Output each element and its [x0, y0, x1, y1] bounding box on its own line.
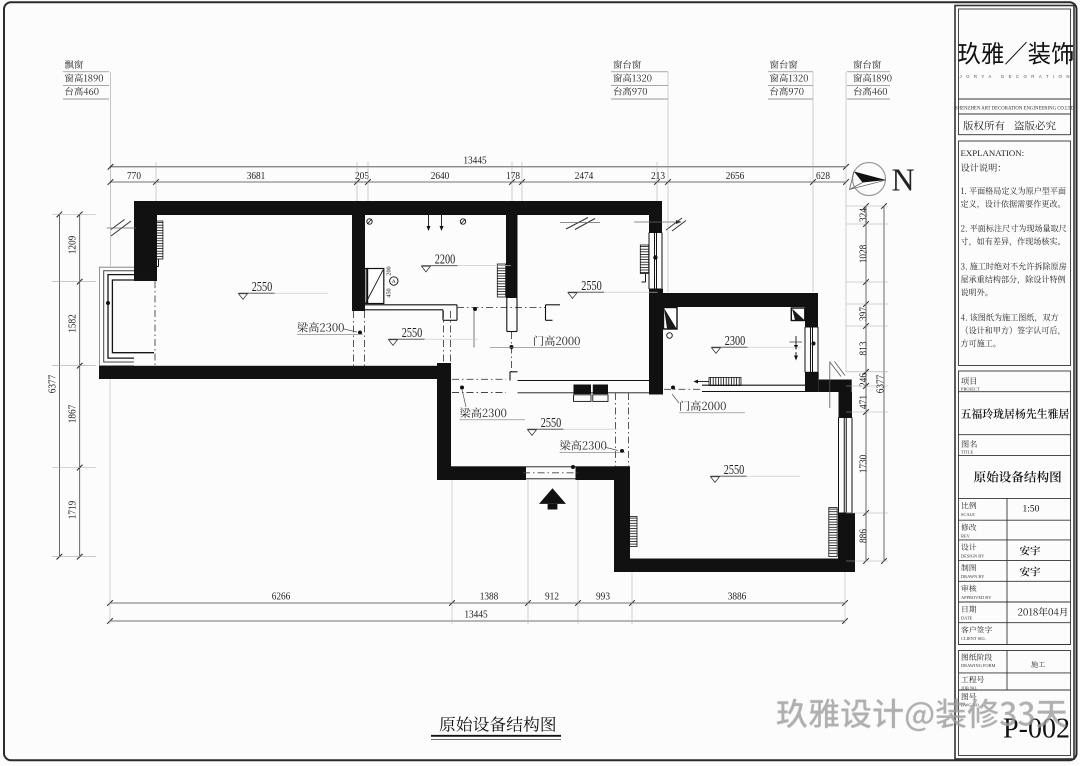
svg-text:DRAWN BY: DRAWN BY — [961, 574, 985, 579]
svg-text:2550: 2550 — [252, 279, 273, 294]
svg-text:1:50: 1:50 — [1023, 505, 1040, 515]
svg-text:EXPLANATION:: EXPLANATION: — [961, 148, 1025, 158]
svg-text:1719: 1719 — [67, 501, 79, 520]
svg-text:1209: 1209 — [67, 236, 79, 255]
svg-text:1867: 1867 — [67, 404, 79, 423]
svg-text:13445: 13445 — [464, 608, 487, 620]
svg-text:6266: 6266 — [272, 590, 291, 602]
svg-text:A: A — [392, 279, 396, 285]
svg-text:TITLE: TITLE — [961, 450, 974, 455]
svg-text:2640: 2640 — [431, 170, 450, 182]
svg-text:APPROVED BY: APPROVED BY — [961, 595, 992, 600]
svg-text:246: 246 — [858, 372, 870, 387]
svg-text:2474: 2474 — [575, 170, 594, 182]
svg-text:2300: 2300 — [725, 333, 746, 348]
svg-text:13445: 13445 — [463, 154, 486, 166]
svg-text:1582: 1582 — [67, 314, 79, 333]
svg-text:6377: 6377 — [47, 374, 59, 393]
svg-text:993: 993 — [596, 590, 610, 602]
svg-text:886: 886 — [858, 528, 870, 543]
svg-text:770: 770 — [127, 170, 141, 182]
svg-text:213: 213 — [651, 170, 665, 182]
svg-text:813: 813 — [858, 342, 870, 356]
svg-text:2550: 2550 — [541, 415, 562, 430]
svg-text:CLIENT SIG.: CLIENT SIG. — [961, 636, 986, 641]
svg-text:3886: 3886 — [728, 590, 747, 602]
svg-text:912: 912 — [545, 590, 559, 602]
svg-text:2550: 2550 — [402, 325, 423, 340]
svg-text:1388: 1388 — [480, 590, 499, 602]
svg-text:6377: 6377 — [875, 374, 887, 393]
svg-text:2550: 2550 — [581, 278, 602, 293]
svg-text:628: 628 — [816, 170, 830, 182]
svg-text:DESIGN BY: DESIGN BY — [961, 553, 985, 558]
svg-text:N: N — [892, 162, 915, 198]
svg-text:2550: 2550 — [724, 462, 745, 477]
svg-text:SCALE: SCALE — [961, 512, 975, 517]
svg-text:1028: 1028 — [858, 245, 870, 264]
svg-text:JOB NO.: JOB NO. — [961, 685, 977, 690]
svg-text:2200: 2200 — [435, 252, 456, 267]
svg-text:450: 450 — [386, 288, 393, 297]
svg-text:SHENZHEN ART DECORATION ENGINE: SHENZHEN ART DECORATION ENGINEERING CO.L… — [955, 107, 1074, 112]
svg-text:DATE: DATE — [961, 616, 973, 621]
svg-text:471: 471 — [858, 395, 870, 409]
svg-text:1730: 1730 — [858, 455, 870, 474]
svg-text:REV.: REV. — [961, 534, 971, 539]
svg-text:PROJECT: PROJECT — [961, 387, 980, 392]
svg-text:3681: 3681 — [247, 170, 266, 182]
svg-text:DRAWING FORM: DRAWING FORM — [961, 663, 996, 668]
svg-text:2656: 2656 — [726, 170, 745, 182]
svg-text:397: 397 — [858, 306, 870, 321]
svg-text:178: 178 — [506, 170, 520, 182]
svg-text:200: 200 — [386, 266, 393, 275]
svg-text:324: 324 — [858, 207, 870, 222]
